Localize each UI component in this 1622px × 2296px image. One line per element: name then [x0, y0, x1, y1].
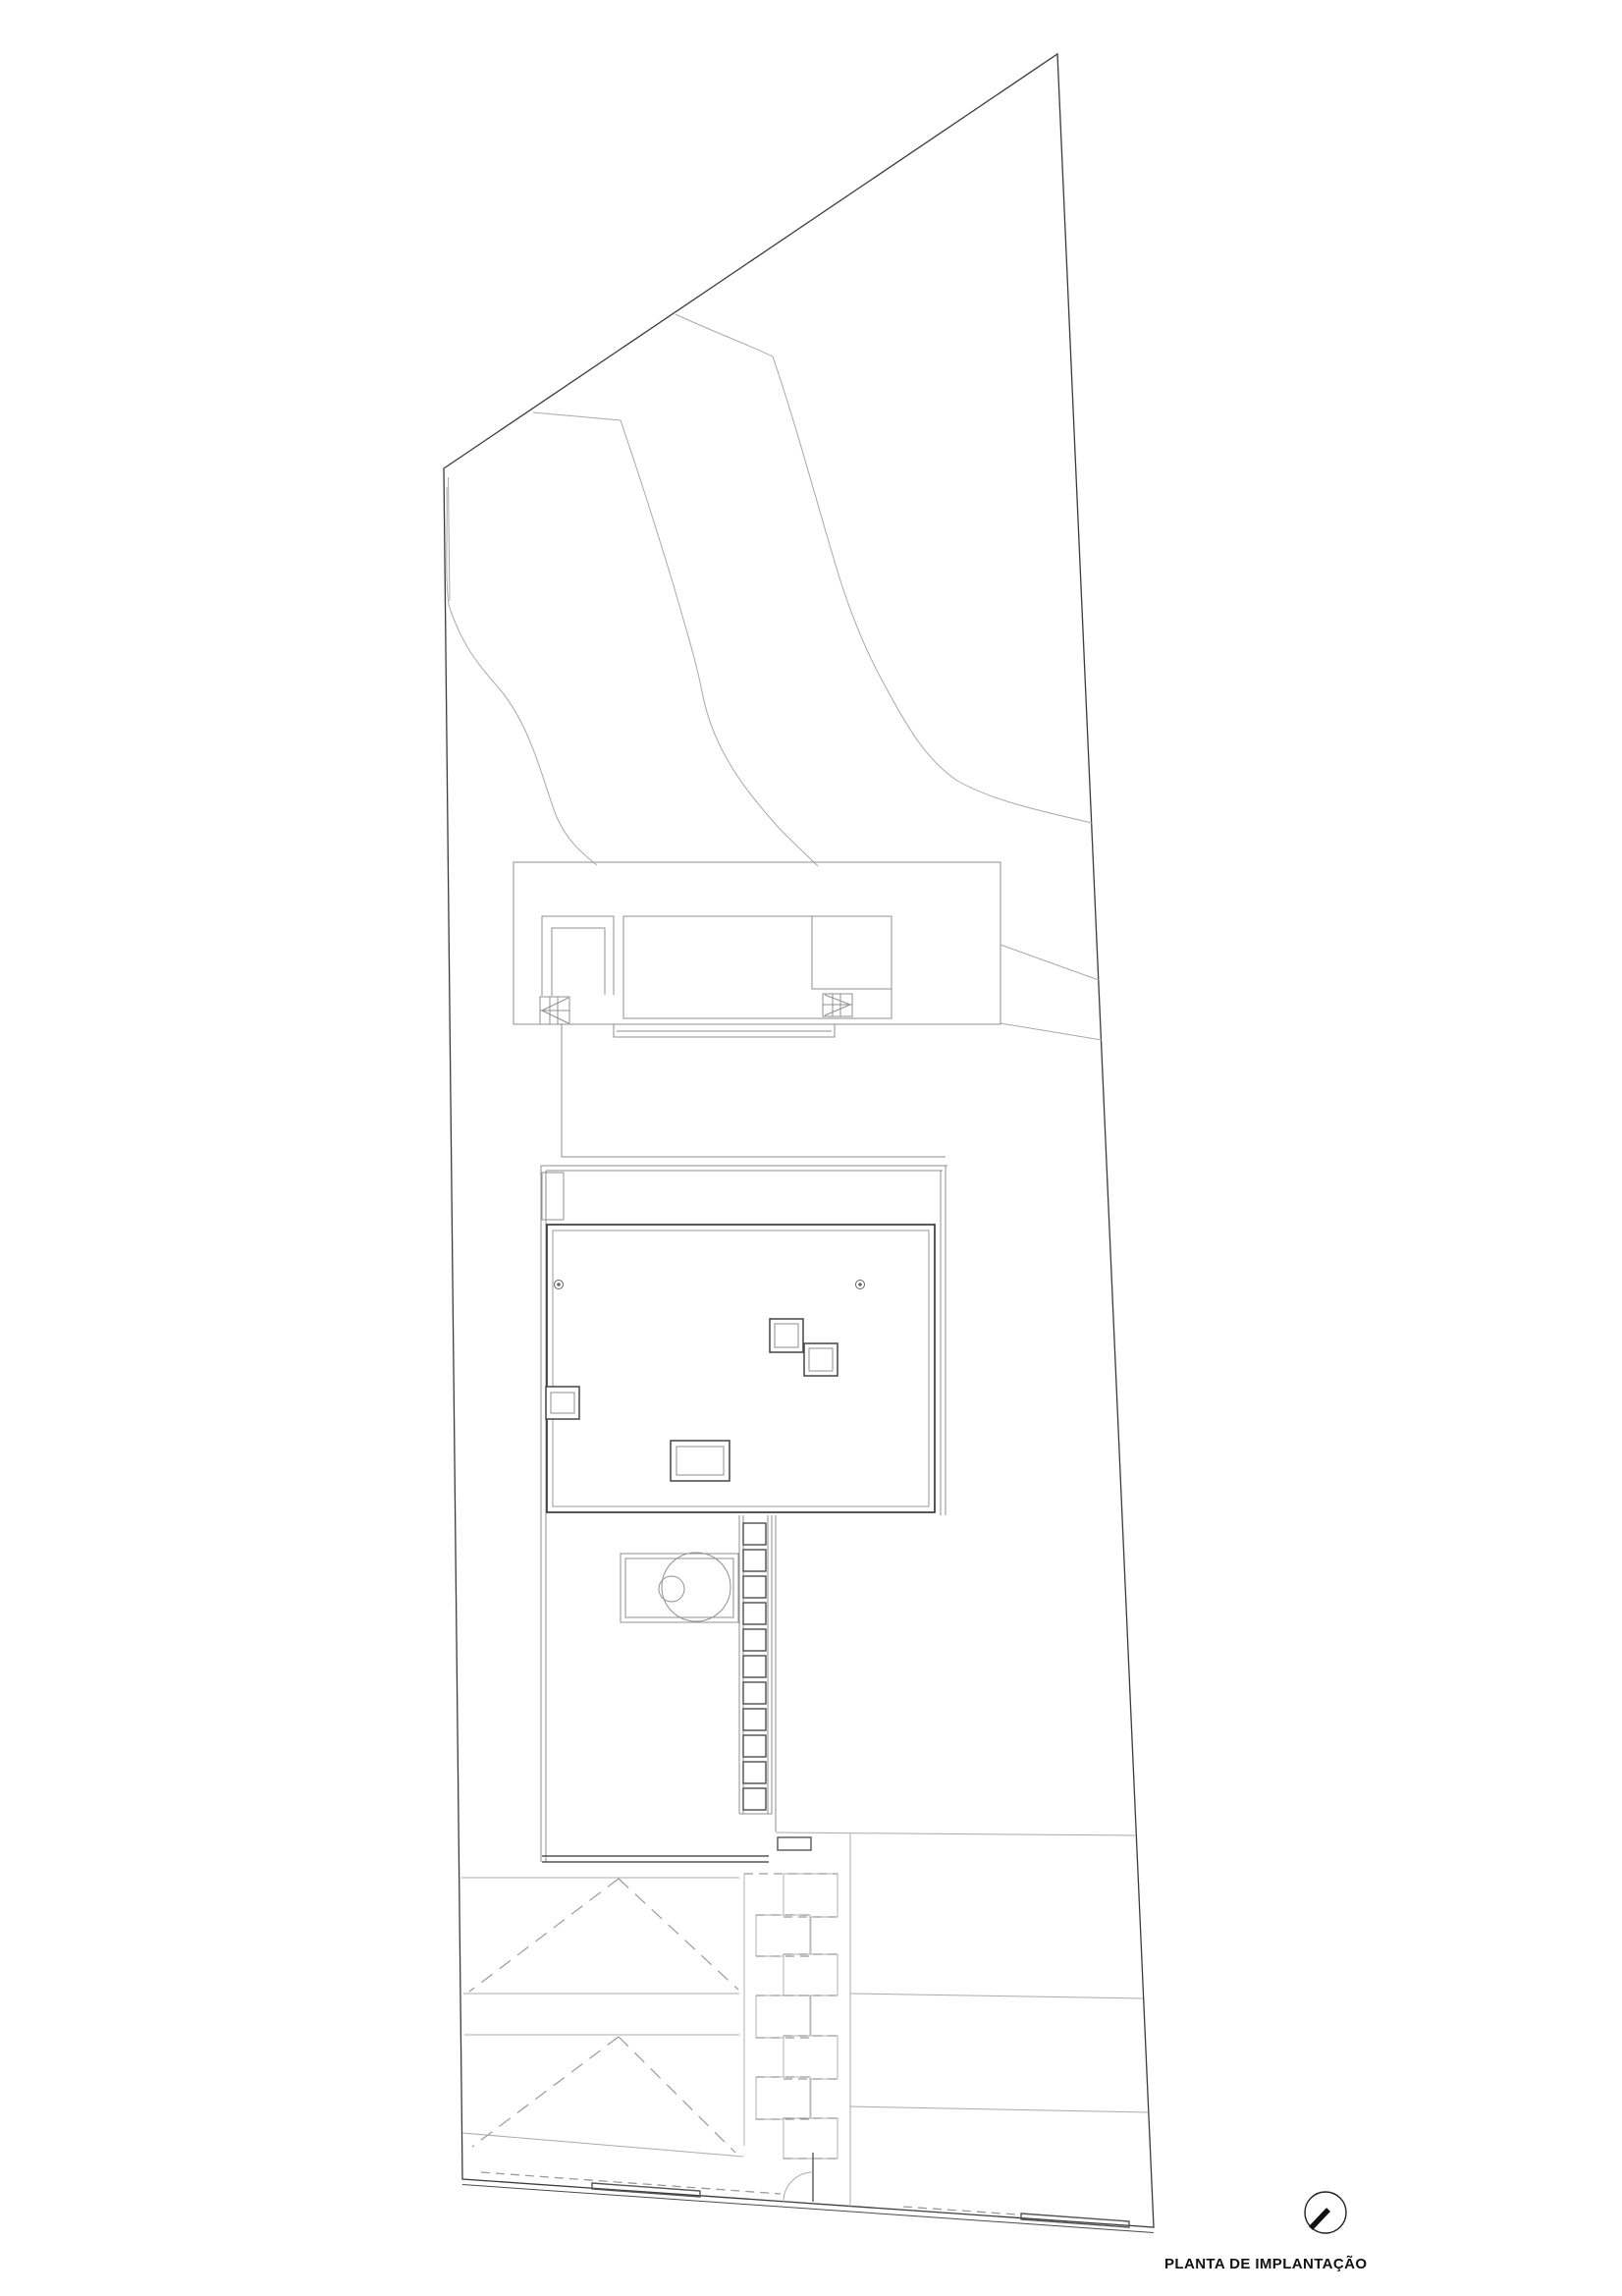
site-plan-drawing	[0, 0, 1622, 2296]
site-plan-sheet: PLANTA DE IMPLANTAÇÃO	[0, 0, 1622, 2296]
terrace-step	[778, 1837, 811, 1850]
north-arrow-icon	[1305, 2192, 1346, 2233]
roof-hatch	[671, 1441, 730, 1481]
roof-edge-box	[546, 1387, 579, 1419]
garden-gate-post	[542, 1173, 564, 1220]
pool-terrace	[621, 1515, 811, 1850]
terrain-contour-lines	[447, 314, 1092, 866]
skylight-2	[804, 1343, 838, 1376]
ramp-chevrons	[469, 1879, 738, 2153]
driveway	[461, 1878, 1016, 2214]
annex-building	[514, 862, 1000, 1037]
stepping-squares-strip	[739, 1515, 772, 1814]
planter-squares	[744, 1874, 838, 2202]
drawing-title: PLANTA DE IMPLANTAÇÃO	[1164, 2256, 1367, 2272]
skylight-1	[770, 1319, 803, 1352]
stair-right	[823, 994, 852, 1016]
spa-pool	[621, 1553, 738, 1622]
stair-left	[540, 997, 569, 1024]
main-house-roof	[546, 1225, 935, 1512]
side-fence-lines	[1000, 945, 1102, 1040]
retaining-walls	[592, 2183, 1129, 2227]
walkway	[562, 1024, 946, 1157]
entrance-gate-arc	[784, 2172, 813, 2202]
